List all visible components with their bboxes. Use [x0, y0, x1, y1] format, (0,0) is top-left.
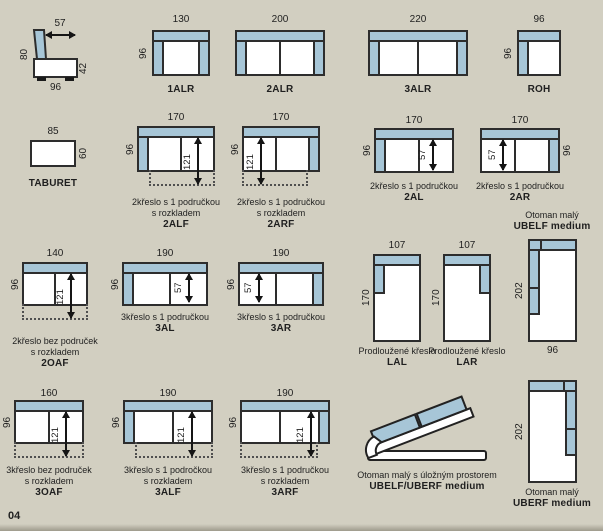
module-code: 3ARF: [230, 487, 340, 498]
seat-divider: [279, 42, 281, 74]
dim-depth: 96: [230, 126, 242, 172]
module-code: TABURET: [29, 178, 77, 189]
module-caption: 3křeslo bez područek s rozkladem 3OAF: [0, 465, 104, 498]
dim-width: 170: [242, 112, 320, 124]
armrest-left: [154, 42, 164, 74]
module-code: 1ALR: [168, 84, 195, 95]
dim-foldout: 121: [55, 277, 67, 317]
seat-divider: [275, 138, 277, 170]
foot-left: [37, 77, 46, 81]
module-3al: 190 96 57 3křeslo s 1 područkou 3AL: [110, 248, 210, 343]
backrest-strip: [530, 241, 575, 251]
module-code: 3AR: [226, 323, 336, 334]
backrest-strip: [242, 402, 328, 412]
module-code: 2ALR: [267, 84, 294, 95]
dim-depth: 96: [111, 400, 123, 444]
dim-width: 85: [30, 126, 76, 138]
dim-seat: 57: [417, 142, 429, 168]
module-2arf: 170 96 121 2křeslo s 1 područkou s rozkl…: [240, 112, 322, 232]
dim-depth: 96: [34, 82, 77, 94]
module-caption: 2křeslo s 1 područkou s rozkladem 2ALF: [121, 197, 231, 230]
page-number: 04: [8, 510, 20, 522]
armrest-right: [313, 42, 323, 74]
foldout-outline: [135, 442, 213, 458]
module-sideview: 57 80 42 96: [12, 12, 122, 104]
topview-drawing: [152, 30, 210, 76]
dim-depth: 96: [10, 262, 22, 306]
backrest-strip: [237, 32, 323, 42]
foldout-arrow: [191, 412, 193, 456]
dim-depth: 96: [125, 126, 137, 172]
armrest-left: [124, 274, 134, 304]
armrest-left: [125, 412, 135, 442]
dim-seat-depth: 57: [42, 18, 78, 30]
module-code: 2ALF: [121, 219, 231, 230]
module-code: LAR: [412, 357, 522, 368]
module-roh: 96 96 ROH: [513, 14, 573, 98]
dim-width: 190: [122, 248, 208, 260]
module-lar: 107 170 Prodloužené křeslo LAR: [430, 240, 505, 370]
module-code: 2AR: [464, 192, 576, 203]
storage-ottoman-drawing: [365, 398, 490, 468]
topview-drawing: [123, 400, 213, 444]
module-code: 2OAF: [0, 358, 110, 369]
module-code: 2AL: [358, 192, 470, 203]
page-bottom-shadow: [0, 524, 603, 531]
backrest-strip: [370, 32, 466, 42]
seat-divider: [514, 140, 516, 171]
foldout-arrow: [197, 138, 199, 184]
module-2oaf: 140 96 121 2křeslo bez područek s rozkla…: [10, 248, 96, 373]
armrest-left: [139, 138, 149, 170]
dim-width: 170: [137, 112, 215, 124]
backrest-strip: [125, 402, 211, 412]
module-3arf: 190 96 121 3křeslo s 1 područkou s rozkl…: [228, 386, 332, 511]
dim-depth: 96: [362, 128, 374, 173]
armrest-left: [237, 42, 247, 74]
backrest-strip: [124, 264, 206, 274]
seat-arrow: [432, 140, 434, 170]
module-3alf: 190 96 121 3křeslo s 1 področkou s rozkl…: [111, 386, 215, 511]
foot-right: [65, 77, 74, 81]
backrest-strip: [482, 130, 558, 140]
module-code: UBELF/UBERF medium: [347, 481, 507, 492]
backrest-strip: [445, 256, 489, 266]
armrest-right: [312, 274, 322, 304]
armrest-left: [519, 42, 529, 74]
seat-divider: [275, 274, 277, 304]
armrest-right: [479, 266, 489, 294]
dim-width: 130: [152, 14, 210, 26]
armrest-right: [456, 42, 466, 74]
module-caption: Otoman malý UBERF medium: [497, 487, 603, 509]
module-3oaf: 160 96 121 3křeslo bez područek s rozkla…: [2, 386, 92, 511]
module-caption: Otoman malý s úložným prostorem UBELF/UB…: [347, 470, 507, 492]
backrest-strip: [240, 264, 322, 274]
foldout-arrow: [260, 138, 262, 184]
dim-width: 107: [443, 240, 491, 252]
armrest-joint: [565, 428, 575, 430]
dim-width: 170: [374, 115, 454, 127]
topview-drawing: [30, 140, 76, 167]
dim-width: 96: [517, 14, 561, 26]
module-1alr: 130 96 1ALR: [130, 14, 220, 98]
module-code: 3AL: [110, 323, 220, 334]
topview-drawing: [373, 254, 421, 342]
dim-width: 107: [373, 240, 421, 252]
armrest-right: [198, 42, 208, 74]
dim-foldout: 121: [245, 142, 257, 182]
dim-depth: 96: [138, 30, 150, 76]
dim-foldout: 121: [295, 415, 307, 455]
module-caption: Prodloužené křeslo LAR: [412, 346, 522, 368]
module-uberf: 202 Otoman malý UBERF medium: [505, 376, 595, 516]
module-code: 3OAF: [0, 487, 104, 498]
topview-drawing: [517, 30, 561, 76]
module-caption: 2křeslo bez područek s rozkladem 2OAF: [0, 336, 110, 369]
module-caption: 3křeslo s 1 područkou s rozkladem 3ARF: [230, 465, 340, 498]
dim-depth: 96: [2, 400, 14, 444]
module-ubelf: Otoman malý UBELF medium 202 96: [505, 210, 595, 360]
backrest-strip: [24, 264, 86, 274]
armrest-right: [548, 140, 558, 171]
backrest-strip: [519, 32, 559, 42]
dim-seat: 57: [243, 276, 255, 300]
module-2al: 170 96 57 2křeslo s 1 područkou 2AL: [362, 115, 458, 210]
module-2alf: 170 96 121 2křeslo s 1 područkou s rozkl…: [135, 112, 217, 232]
dim-foldout: 121: [50, 415, 62, 455]
topview-drawing: [122, 262, 208, 306]
seat-arrow: [258, 274, 260, 302]
dim-foldout: 121: [182, 142, 194, 182]
dim-foldout: 121: [176, 415, 188, 455]
foldout-arrow: [70, 274, 72, 318]
module-code: 3ALR: [405, 84, 432, 95]
dim-depth: 60: [78, 140, 90, 167]
foldout-arrow: [310, 412, 312, 456]
module-taburet: 85 60 TABURET: [20, 126, 96, 196]
module-code: UBELF medium: [497, 221, 603, 232]
topview-drawing: [14, 400, 84, 444]
armrest-left: [370, 42, 380, 74]
backrest-strip: [530, 382, 575, 392]
seat-depth-arrow: [46, 34, 75, 36]
dim-depth: 96: [562, 128, 574, 173]
module-3ar: 190 96 57 3křeslo s 1 područkou 3AR: [226, 248, 326, 343]
topview-drawing: [137, 126, 215, 172]
topview-drawing: [528, 380, 577, 483]
module-code: ROH: [528, 84, 551, 95]
seat-divider: [279, 412, 281, 442]
backrest-strip: [154, 32, 208, 42]
module-caption: 2křeslo s 1 područkou s rozkladem 2ARF: [226, 197, 336, 230]
armrest-right: [318, 412, 328, 442]
armrest-right: [565, 392, 575, 456]
dim-length: 202: [514, 380, 526, 483]
topview-drawing: [240, 400, 330, 444]
dim-length: 170: [361, 254, 373, 342]
armrest-left: [376, 140, 386, 171]
dim-width: 160: [14, 388, 84, 400]
module-code: UBERF medium: [497, 498, 603, 509]
backrest-joint: [540, 241, 542, 251]
topview-drawing: [235, 30, 325, 76]
backrest-strip: [16, 402, 82, 412]
backrest-strip: [244, 128, 318, 138]
topview-drawing: [443, 254, 491, 342]
backrest-strip: [376, 130, 452, 140]
dim-length: 170: [431, 254, 443, 342]
dim-width: 190: [238, 248, 324, 260]
module-caption: 3křeslo s 1 področkou s rozkladem 3ALF: [113, 465, 223, 498]
module-code: 2ARF: [226, 219, 336, 230]
dim-length: 202: [514, 239, 526, 342]
module-2alr: 200 2ALR: [233, 14, 327, 98]
dim-width: 190: [123, 388, 213, 400]
dim-width: 220: [368, 14, 468, 26]
dim-seat: 57: [487, 142, 499, 168]
dim-seat: 57: [173, 276, 185, 300]
armrest-joint: [530, 287, 540, 289]
dim-width: 190: [240, 388, 330, 400]
dim-depth: 96: [503, 30, 515, 76]
module-caption: 3křeslo s 1 područkou 3AL: [110, 312, 220, 334]
armrest-left: [530, 251, 540, 315]
module-caption: Otoman malý UBELF medium: [497, 210, 603, 232]
topview-drawing: [374, 128, 454, 173]
armrest-left: [375, 266, 385, 294]
dim-seat-height: 42: [78, 59, 90, 77]
dim-width: 96: [528, 345, 577, 357]
seat-divider: [417, 42, 419, 74]
dim-depth: 96: [110, 262, 122, 306]
dim-width: 140: [22, 248, 88, 260]
dim-width: 170: [480, 115, 560, 127]
backrest-joint: [563, 382, 565, 392]
dim-depth: 96: [228, 400, 240, 444]
module-3alr: 220 3ALR: [366, 14, 470, 98]
backrest-strip: [375, 256, 419, 266]
dim-width: 200: [235, 14, 325, 26]
foldout-outline: [14, 442, 84, 458]
module-caption: 2křeslo s 1 područkou 2AR: [464, 181, 576, 203]
seat-arrow: [502, 140, 504, 170]
seat-divider: [169, 274, 171, 304]
seat-divider: [172, 412, 174, 442]
dim-back-height: 80: [19, 42, 31, 66]
topview-drawing: [528, 239, 577, 342]
catalog-page: 57 80 42 96 130 96 1ALR 200 2ALR 220: [0, 0, 603, 531]
foldout-arrow: [65, 412, 67, 456]
module-storage-ottoman: Otoman malý s úložným prostorem UBELF/UB…: [360, 396, 495, 506]
armrest-right: [308, 138, 318, 170]
module-2ar: 170 96 57 2křeslo s 1 područkou 2AR: [476, 115, 576, 210]
module-caption: 3křeslo s 1 područkou 3AR: [226, 312, 336, 334]
dim-depth: 96: [226, 262, 238, 306]
module-caption: 2křeslo s 1 područkou 2AL: [358, 181, 470, 203]
seat-arrow: [188, 274, 190, 302]
module-code: 3ALF: [113, 487, 223, 498]
topview-drawing: [368, 30, 468, 76]
